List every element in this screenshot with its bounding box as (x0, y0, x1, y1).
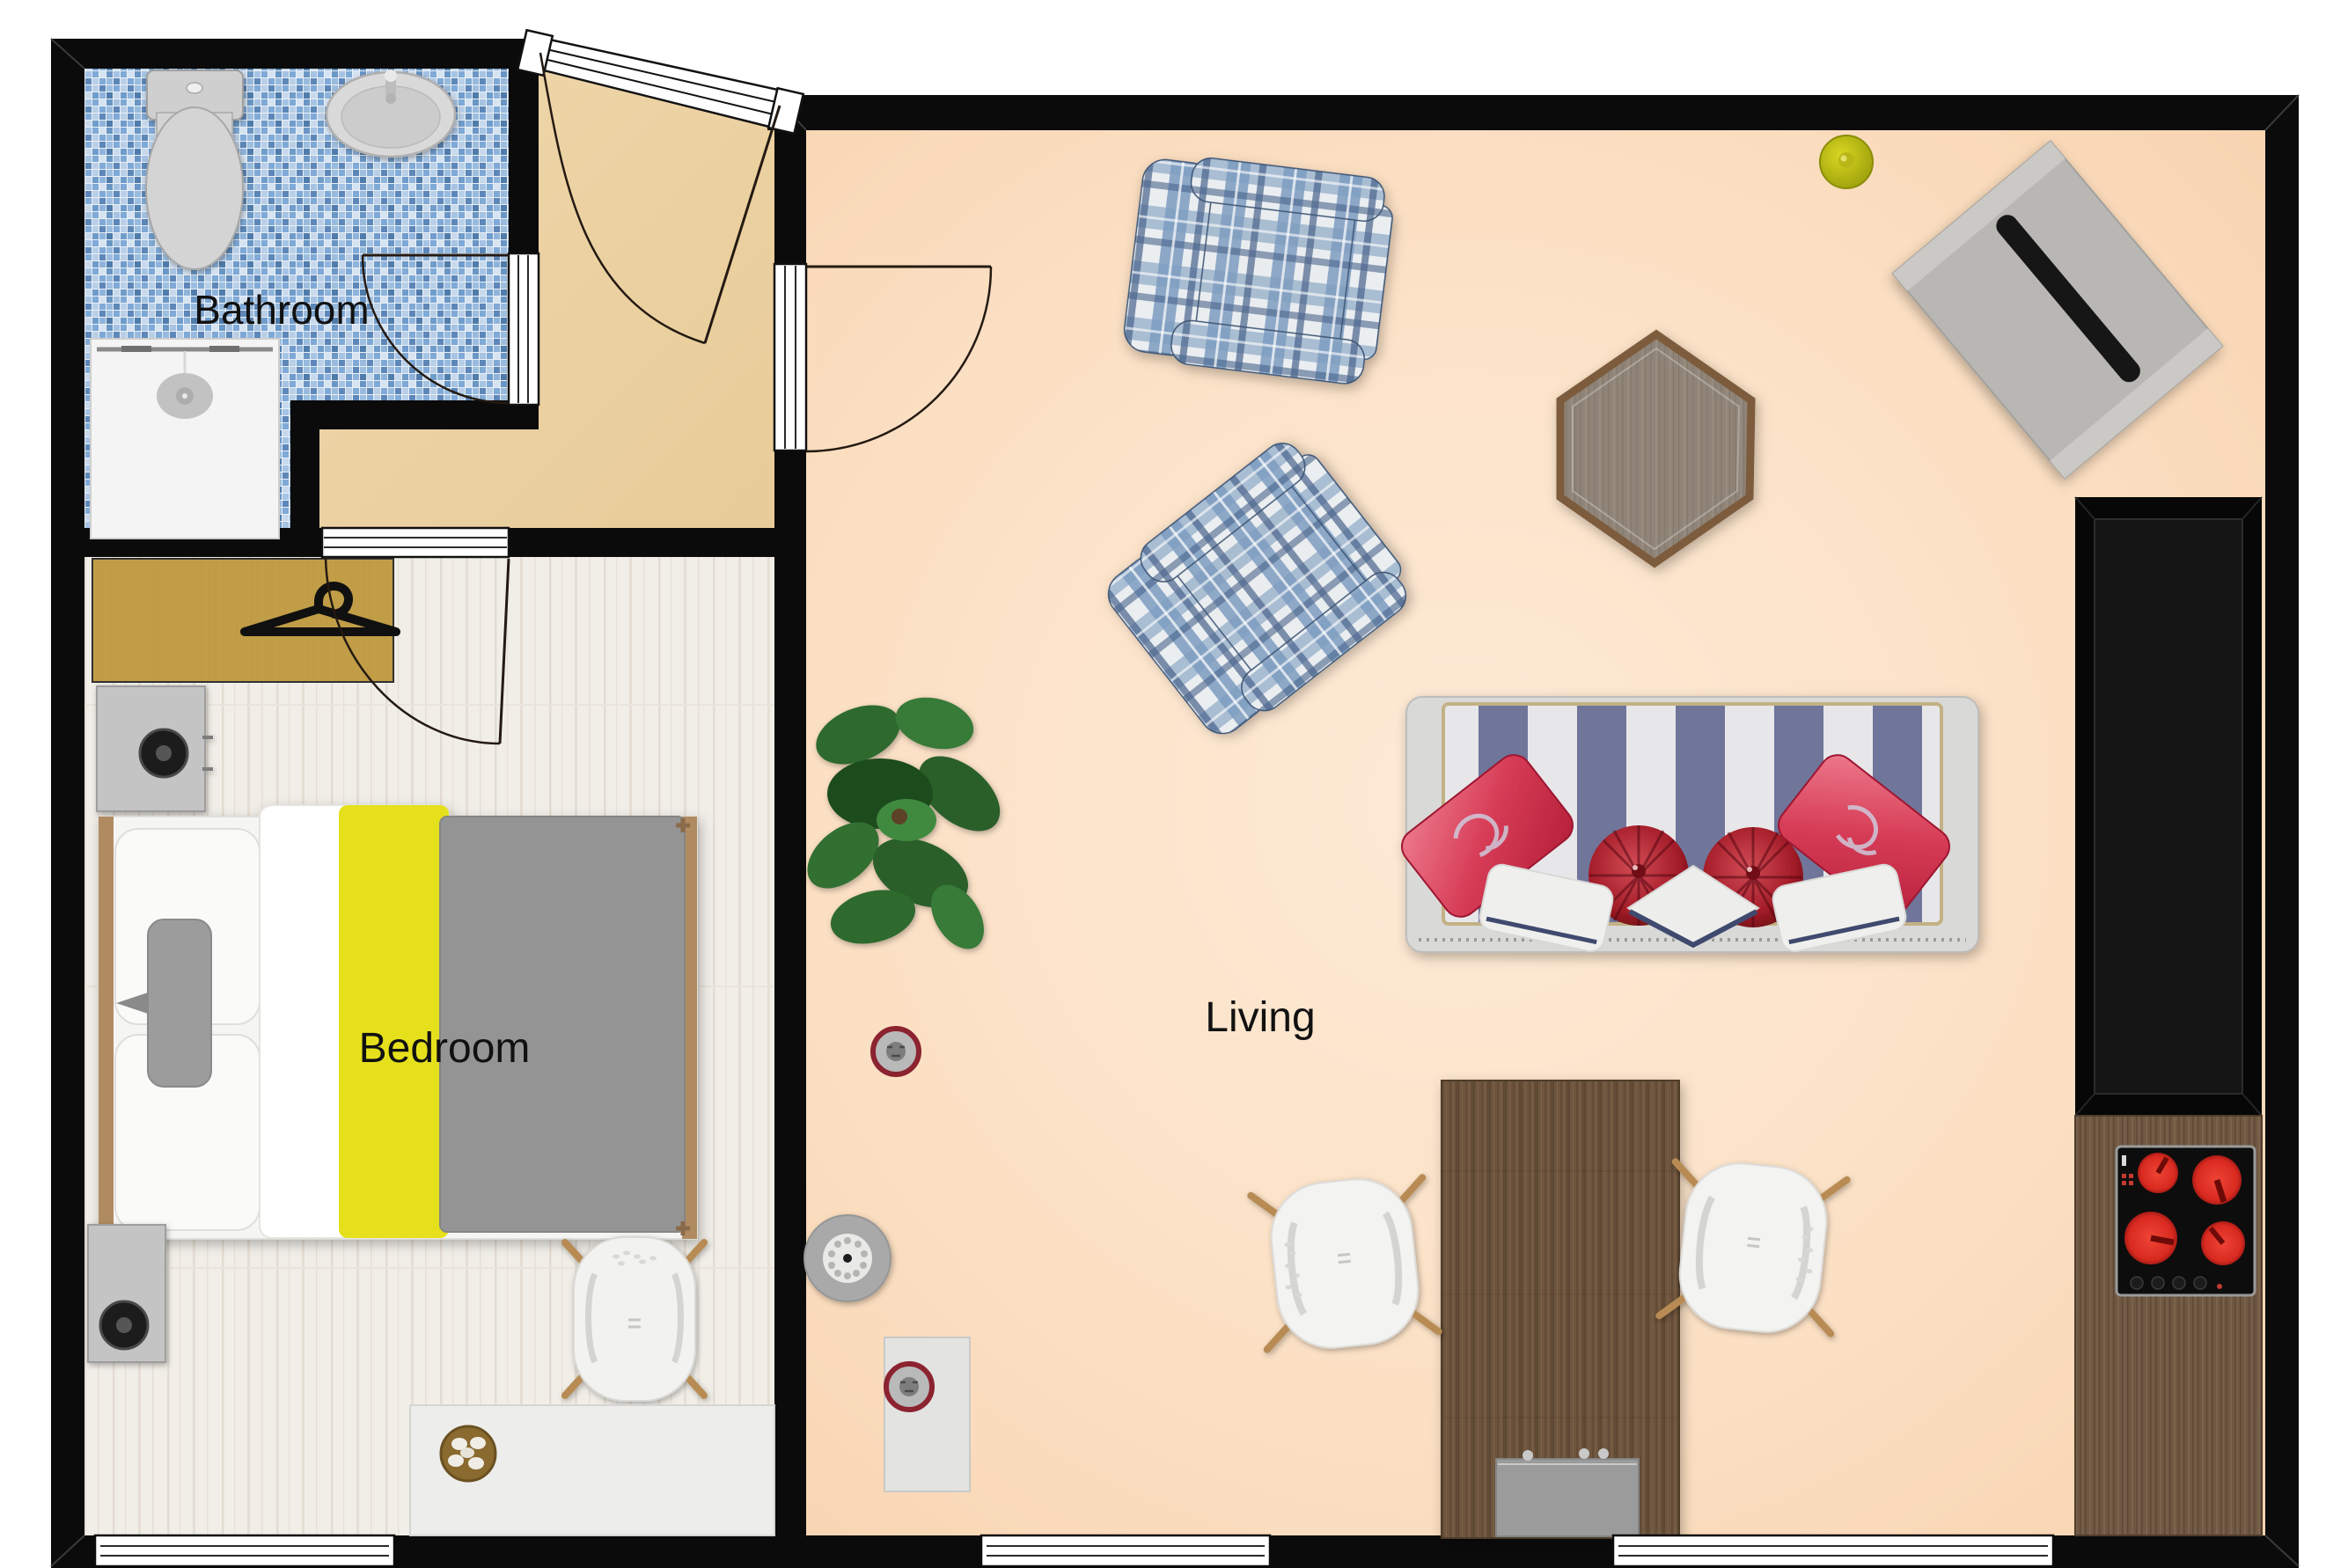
cooktop (2117, 1147, 2255, 1295)
dock-box (884, 1337, 970, 1491)
robot-vacuum (804, 1215, 891, 1301)
wall-right (2265, 95, 2299, 1566)
toilet (146, 70, 243, 269)
dining-table (1442, 1081, 1679, 1538)
kitchen-counter (2075, 1116, 2262, 1535)
living-window-right (1613, 1535, 2053, 1566)
bathroom-door-frame (509, 253, 539, 405)
living-label: Living (1205, 994, 1315, 1041)
wall-divider-lower (774, 451, 806, 1535)
desk (410, 1405, 774, 1535)
wardrobe (92, 559, 396, 682)
wall-left (51, 39, 84, 1566)
bed (99, 805, 697, 1239)
dresser-speaker-top (97, 686, 213, 811)
sofa (1395, 697, 1978, 954)
sink-cabinet (1496, 1448, 1639, 1536)
bedroom-door-frame (322, 528, 509, 557)
duvet-yellow (339, 805, 449, 1238)
tall-black-cabinet (2075, 497, 2262, 1116)
shower (91, 339, 279, 539)
fruit-bowl (441, 1426, 495, 1481)
ceiling-lamp-center (1838, 152, 1854, 168)
floor-plan-canvas: Bathroom Bedroom Living (0, 0, 2348, 1568)
pillow-gray (148, 920, 211, 1087)
wall-bathroom-step-v (290, 400, 319, 528)
wall-top-bathroom (51, 39, 542, 69)
bedroom-chair (565, 1237, 704, 1401)
bathroom-label: Bathroom (194, 287, 369, 333)
blanket-gray (440, 817, 685, 1232)
nightstand-speaker-bottom (88, 1225, 165, 1362)
bedroom-window (95, 1535, 394, 1566)
living-window-left (981, 1535, 1270, 1566)
bedroom-label: Bedroom (359, 1025, 531, 1072)
wall-bathroom-step-h (290, 400, 539, 429)
wall-bedroom-top-right (509, 528, 806, 557)
living-door-frame (774, 264, 806, 451)
ceiling-lamp-glint (1841, 156, 1847, 162)
wall-top-living (767, 95, 2299, 130)
plaid-armchair-top (1121, 150, 1398, 387)
smoke-detector (873, 1029, 919, 1074)
floor-plan: Bathroom Bedroom Living (0, 0, 2348, 1568)
